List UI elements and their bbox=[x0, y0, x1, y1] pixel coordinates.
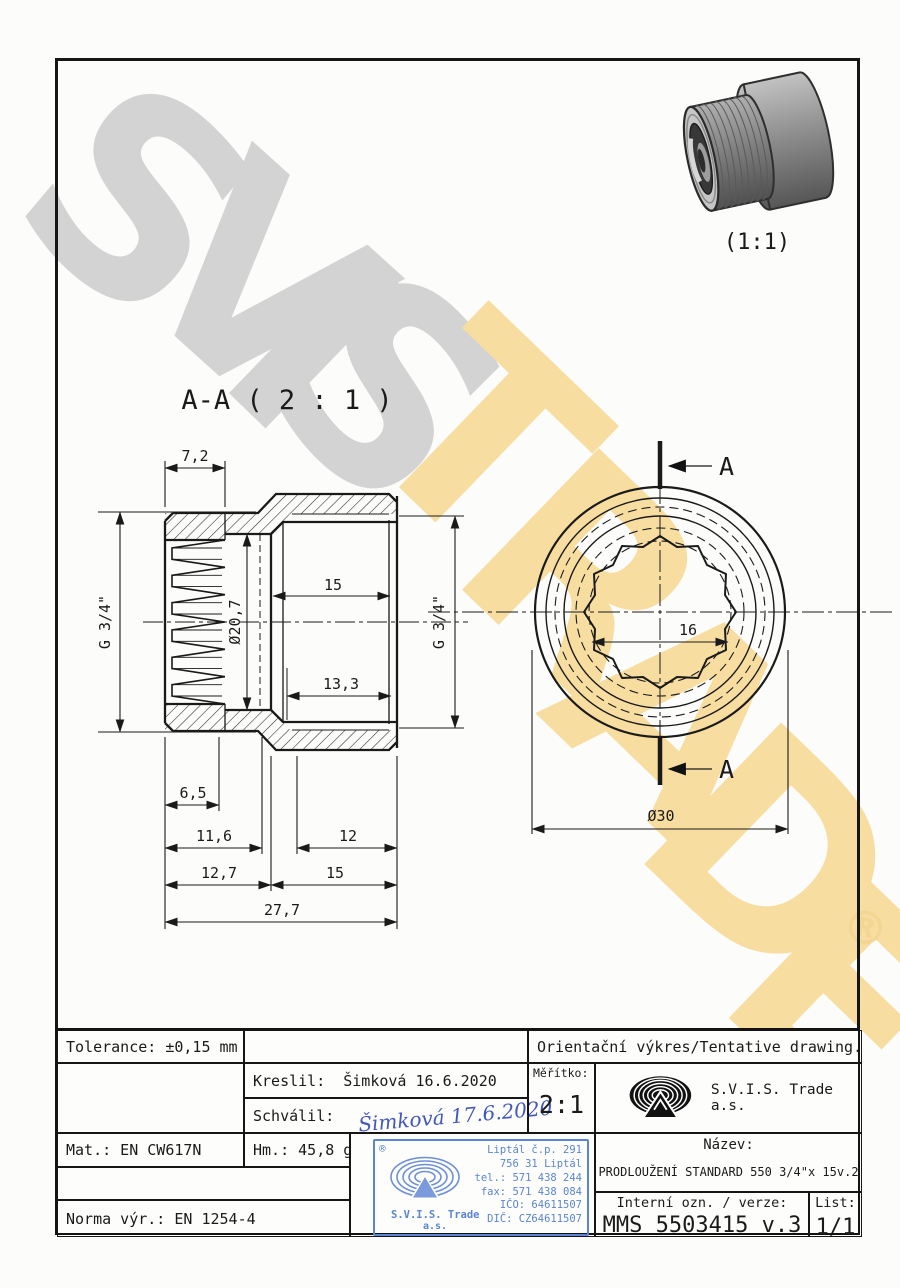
scale-value: 2:1 bbox=[529, 1090, 594, 1119]
empty-cell-left bbox=[57, 1063, 244, 1133]
tolerance-text: Tolerance: ±0,15 mm bbox=[66, 1038, 238, 1056]
scale-cell: Měřítko: 2:1 bbox=[528, 1063, 595, 1133]
stamp-logo bbox=[383, 1153, 467, 1205]
dim-12: 12 bbox=[339, 827, 357, 845]
dim-30: Ø30 bbox=[647, 807, 674, 825]
internal-id-value: MMS 5503415 v.3 bbox=[603, 1213, 802, 1238]
empty-cell-bottom bbox=[57, 1167, 350, 1200]
approval-signature: Šimková 17.6.2020 bbox=[358, 1095, 554, 1136]
section-label: A-A ( 2 : 1 ) bbox=[181, 385, 392, 416]
company-cell: S.V.I.S. Trade a.s. bbox=[595, 1063, 862, 1133]
hatch-bottom-wall bbox=[165, 704, 397, 750]
cut-label-bottom: A bbox=[719, 755, 734, 784]
stamp-cell: ® S.V.I.S. Trade a.s. Liptál č.p. 291 75… bbox=[350, 1133, 595, 1237]
stamp-line: fax: 571 438 084 bbox=[464, 1186, 582, 1200]
dim-g34-left: G 3/4" bbox=[96, 595, 114, 649]
cut-label-top: A bbox=[719, 452, 734, 481]
section-dimensions bbox=[98, 461, 464, 929]
mass-text: Hm.: 45,8 g bbox=[253, 1141, 352, 1159]
render-scale-label: (1:1) bbox=[724, 230, 790, 255]
section-view bbox=[143, 494, 468, 750]
schvalil-label: Schválil: bbox=[253, 1107, 334, 1125]
dim-bore-20-7: Ø20,7 bbox=[226, 599, 244, 644]
dim-15-bottom: 15 bbox=[326, 864, 344, 882]
dim-6-5: 6,5 bbox=[179, 784, 206, 802]
tolerance-cell: Tolerance: ±0,15 mm bbox=[57, 1030, 244, 1063]
dim-7-2: 7,2 bbox=[181, 447, 208, 465]
kreslil-cell: Kreslil: Šimková 16.6.2020 bbox=[244, 1063, 528, 1098]
drawing-sheet: S V I S T R A D E ® bbox=[0, 0, 900, 1288]
stamp-address-lines: Liptál č.p. 291 756 31 Liptál tel.: 571 … bbox=[464, 1144, 582, 1227]
dim-13-3: 13,3 bbox=[323, 675, 359, 693]
material-cell: Mat.: EN CW617N bbox=[57, 1133, 244, 1167]
kreslil-value: Šimková 16.6.2020 bbox=[343, 1072, 497, 1090]
stamp-line: tel.: 571 438 244 bbox=[464, 1172, 582, 1186]
part-name-value: PRODLOUŽENÍ STANDARD 550 3/4"x 15v.2 bbox=[598, 1165, 858, 1179]
scale-label: Měřítko: bbox=[529, 1064, 594, 1080]
internal-id-cell: Interní ozn. / verze: MMS 5503415 v.3 bbox=[595, 1192, 809, 1237]
company-name: S.V.I.S. Trade a.s. bbox=[711, 1082, 861, 1114]
stamp-line: 756 31 Liptál bbox=[464, 1158, 582, 1172]
dim-15-mid: 15 bbox=[324, 576, 342, 594]
part-3d-render bbox=[675, 69, 842, 224]
dim-11-6: 11,6 bbox=[196, 827, 232, 845]
mass-cell: Hm.: 45,8 g bbox=[244, 1133, 350, 1167]
dim-16: 16 bbox=[679, 621, 697, 639]
kreslil-label: Kreslil: bbox=[253, 1072, 325, 1090]
dim-12-7: 12,7 bbox=[201, 864, 237, 882]
schvalil-cell: Schválil: Šimková 17.6.2020 bbox=[244, 1098, 528, 1133]
orientation-note: Orientační výkres/Tentative drawing. bbox=[537, 1038, 862, 1056]
norm-cell: Norma výr.: EN 1254-4 bbox=[57, 1200, 350, 1237]
stamp-line: IČO: 64611507 bbox=[464, 1199, 582, 1213]
company-stamp: ® S.V.I.S. Trade a.s. Liptál č.p. 291 75… bbox=[373, 1139, 589, 1236]
sheet-cell: List: 1/1 bbox=[809, 1192, 862, 1237]
sheet-value: 1/1 bbox=[816, 1215, 856, 1240]
internal-id-label: Interní ozn. / verze: bbox=[617, 1193, 788, 1211]
norm-text: Norma výr.: EN 1254-4 bbox=[66, 1210, 256, 1228]
stamp-line: Liptál č.p. 291 bbox=[464, 1144, 582, 1158]
dim-27-7: 27,7 bbox=[264, 901, 300, 919]
circular-view bbox=[428, 441, 892, 834]
hatch-top-wall bbox=[165, 494, 397, 540]
part-name-cell: Název: PRODLOUŽENÍ STANDARD 550 3/4"x 15… bbox=[595, 1133, 862, 1192]
dim-g34-right: G 3/4" bbox=[430, 595, 448, 649]
empty-cell-top bbox=[244, 1030, 528, 1063]
material-text: Mat.: EN CW617N bbox=[66, 1141, 201, 1159]
part-name-label: Název: bbox=[703, 1134, 754, 1153]
company-logo bbox=[626, 1071, 695, 1125]
title-block: Tolerance: ±0,15 mm Orientační výkres/Te… bbox=[55, 1028, 860, 1235]
orientation-note-cell: Orientační výkres/Tentative drawing. bbox=[528, 1030, 862, 1063]
sheet-label: List: bbox=[815, 1193, 856, 1211]
stamp-line: DIČ: CZ64611507 bbox=[464, 1213, 582, 1227]
stamp-company-suffix: a.s. bbox=[423, 1221, 447, 1232]
